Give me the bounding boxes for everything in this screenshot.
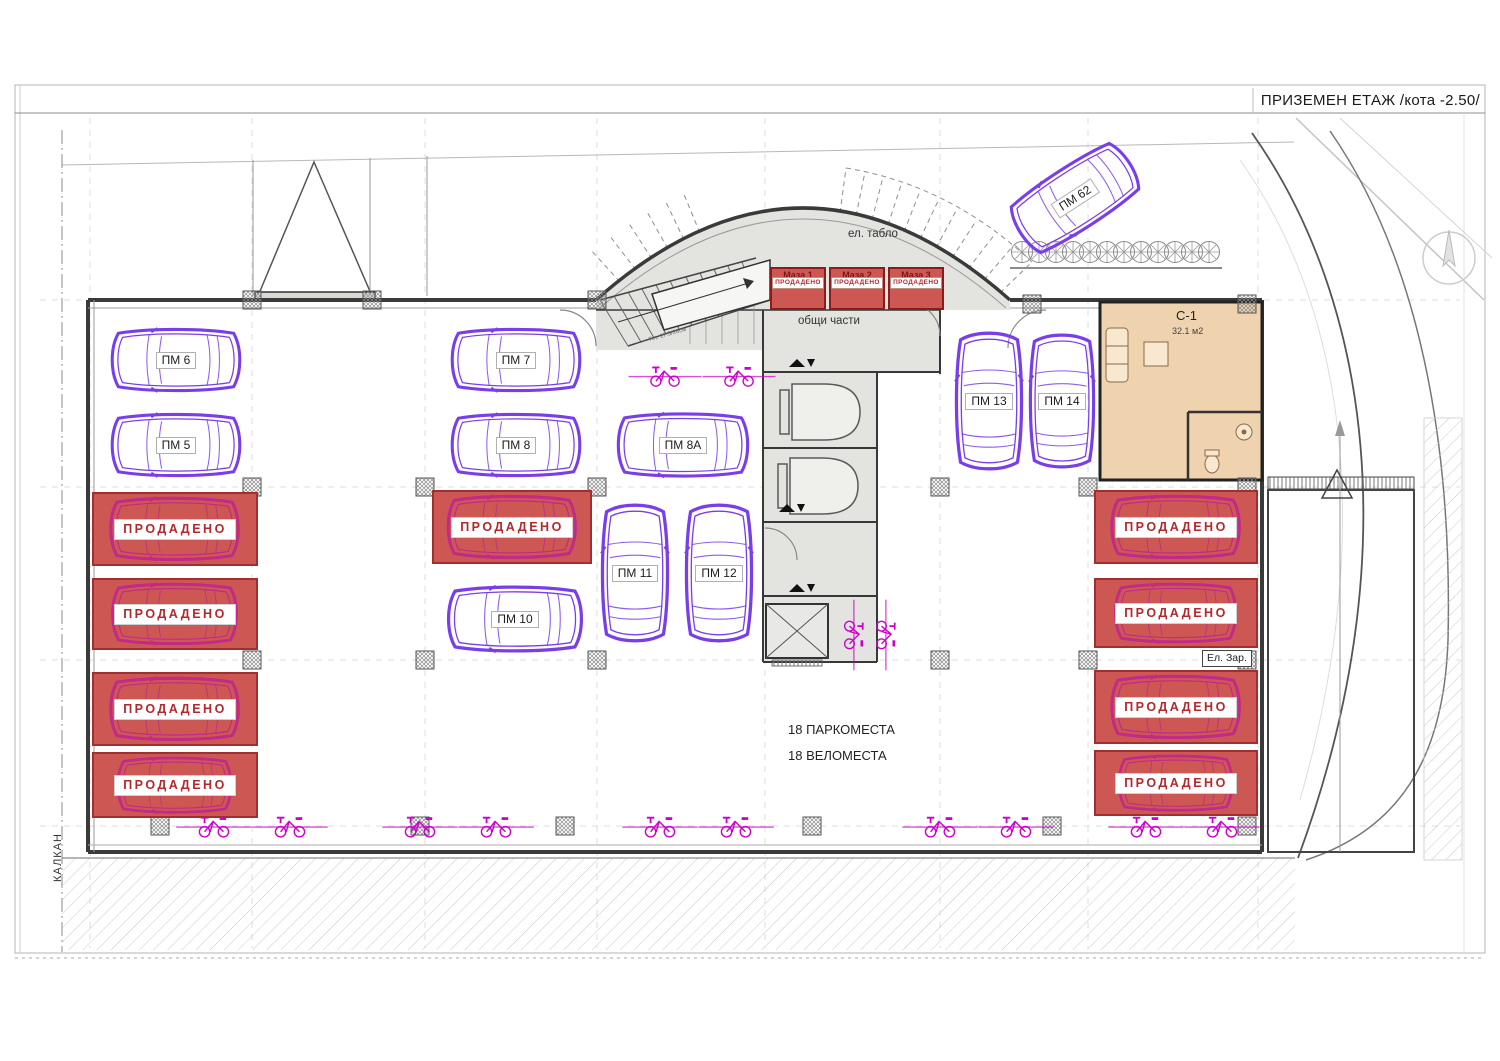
sold-label: ПРОДАДЕНО — [772, 277, 824, 289]
sold-label: ПРОДАДЕНО — [114, 699, 236, 720]
parking-spot-pm8: ПМ 8 — [444, 409, 588, 481]
bicycle-icon — [698, 818, 773, 837]
sold-label: ПРОДАДЕНО — [114, 775, 236, 796]
parking-spot-label: ПМ 8А — [659, 437, 708, 454]
floor-plan-sheet: ПРИЗЕМЕН ЕТАЖ /кота -2.50/ ел. табло общ… — [0, 0, 1500, 1061]
sold-parking-spot: ПРОДАДЕНО — [1094, 670, 1258, 744]
parking-spot-pm11: ПМ 11 — [600, 494, 670, 652]
parking-spot-pm6: ПМ 6 — [104, 324, 248, 396]
sold-parking-spot: ПРОДАДЕНО — [92, 492, 258, 566]
storage-unit-maza2: Маза 2 ПРОДАДЕНО — [829, 267, 885, 310]
sold-parking-spot: ПРОДАДЕНО — [92, 578, 258, 650]
bicycle-icon — [978, 818, 1053, 837]
parking-spot-pm5: ПМ 5 — [104, 409, 248, 481]
kalkan-label: КАЛКАН — [52, 833, 64, 882]
sold-label: ПРОДАДЕНО — [890, 277, 942, 289]
el-tablo-label: ел. табло — [848, 228, 898, 240]
bicycle-icon — [629, 367, 702, 386]
sold-label: ПРОДАДЕНО — [1115, 697, 1237, 718]
parking-spot-label: ПМ 12 — [695, 565, 742, 582]
parking-count-label: 18 ПАРКОМЕСТА — [788, 722, 895, 737]
drawing-title: ПРИЗЕМЕН ЕТАЖ /кота -2.50/ — [1261, 92, 1480, 109]
bicycle-icon — [252, 818, 327, 837]
sold-label: ПРОДАДЕНО — [1115, 773, 1237, 794]
parking-spot-label: ПМ 11 — [612, 565, 658, 582]
unit-c1-name: С-1 — [1176, 308, 1197, 323]
parking-spot-pm8a: ПМ 8А — [610, 409, 756, 481]
parking-spot-pm10: ПМ 10 — [440, 584, 590, 654]
bicycle-icon — [902, 818, 977, 837]
bicycle-icon — [458, 818, 533, 837]
parking-spot-label: ПМ 5 — [156, 437, 197, 454]
sold-parking-spot: ПРОДАДЕНО — [92, 672, 258, 746]
bicycle-icon — [622, 818, 697, 837]
bicycle-icon — [1108, 818, 1183, 837]
ramp-area — [1268, 420, 1414, 852]
parking-spot-pm7: ПМ 7 — [444, 324, 588, 396]
common-areas-label: общи части — [798, 315, 860, 327]
bicycle-icon — [176, 818, 251, 837]
bike-count-label: 18 ВЕЛОМЕСТА — [788, 748, 887, 763]
ev-charger-label: Ел. Зар. — [1202, 650, 1252, 667]
storage-unit-maza1: Маза 1 ПРОДАДЕНО — [770, 267, 826, 310]
sold-label: ПРОДАДЕНО — [114, 519, 236, 540]
parking-spot-pm12: ПМ 12 — [684, 494, 754, 652]
ground-hatch — [62, 858, 1295, 950]
sold-label: ПРОДАДЕНО — [1115, 517, 1237, 538]
sold-label: ПРОДАДЕНО — [114, 604, 236, 625]
parking-spot-label: ПМ 14 — [1038, 393, 1085, 410]
compass-icon — [1423, 230, 1475, 284]
sold-label: ПРОДАДЕНО — [831, 277, 883, 289]
sold-parking-spot: ПРОДАДЕНО — [1094, 750, 1258, 816]
parking-spot-pm14: ПМ 14 — [1028, 320, 1096, 482]
sold-label: ПРОДАДЕНО — [451, 517, 573, 538]
parking-spot-label: ПМ 8 — [496, 437, 537, 454]
elevator-shaft — [766, 604, 828, 666]
parking-spot-label: ПМ 13 — [965, 393, 1012, 410]
sold-parking-spot: ПРОДАДЕНО — [92, 752, 258, 818]
parking-spot-pm13: ПМ 13 — [954, 320, 1024, 482]
skylight-triangle — [253, 156, 427, 300]
sold-parking-spot: ПРОДАДЕНО — [1094, 578, 1258, 648]
bicycle-icon — [877, 600, 895, 671]
sold-label: ПРОДАДЕНО — [1115, 603, 1237, 624]
storage-unit-maza3: Маза 3 ПРОДАДЕНО — [888, 267, 944, 310]
parking-spot-label: ПМ 10 — [491, 611, 538, 628]
unit-c1-area: 32.1 м2 — [1172, 326, 1203, 336]
sold-parking-spot: ПРОДАДЕНО — [1094, 490, 1258, 564]
parking-spot-label: ПМ 6 — [156, 352, 197, 369]
sold-parking-spot: ПРОДАДЕНО — [432, 490, 592, 564]
parking-spot-label: ПМ 7 — [496, 352, 537, 369]
